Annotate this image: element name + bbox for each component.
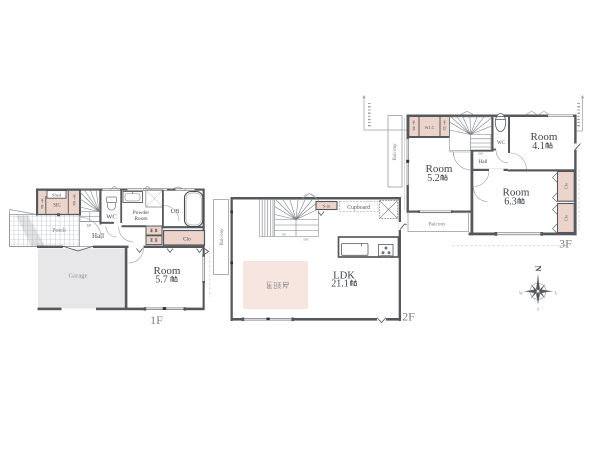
- svg-text:21.1: 21.1: [331, 279, 349, 290]
- svg-text:Clo: Clo: [183, 237, 191, 243]
- svg-text:E: E: [555, 291, 558, 296]
- svg-text:Cupboard: Cupboard: [347, 205, 370, 211]
- svg-text:5.2: 5.2: [427, 173, 440, 184]
- svg-text:Shed: Shed: [52, 193, 62, 198]
- svg-text:Garage: Garage: [68, 273, 87, 280]
- svg-text:Clo: Clo: [564, 214, 569, 221]
- svg-text:Porch: Porch: [52, 228, 66, 234]
- svg-text:Hall: Hall: [479, 159, 488, 165]
- svg-text:Hall: Hall: [92, 232, 104, 240]
- svg-text:W: W: [519, 291, 523, 296]
- svg-text:UB: UB: [170, 208, 180, 215]
- svg-text:Balcony: Balcony: [219, 228, 225, 246]
- svg-text:6.3: 6.3: [504, 197, 517, 208]
- svg-text:3F: 3F: [559, 236, 572, 250]
- svg-text:N: N: [534, 265, 544, 272]
- svg-text:5.7: 5.7: [155, 275, 168, 286]
- svg-text:4.1: 4.1: [532, 141, 545, 152]
- svg-text:S-in: S-in: [323, 204, 331, 209]
- svg-text:SIC: SIC: [53, 204, 60, 209]
- svg-text:Room: Room: [134, 216, 148, 222]
- svg-text:Balcony: Balcony: [392, 143, 398, 161]
- svg-text:UP: UP: [282, 233, 286, 237]
- svg-text:UP: UP: [87, 224, 92, 228]
- svg-text:WC: WC: [497, 141, 505, 146]
- svg-text:DN: DN: [304, 238, 309, 242]
- svg-text:Clo: Clo: [564, 182, 569, 189]
- svg-text:1F: 1F: [150, 313, 163, 327]
- svg-text:DN: DN: [478, 152, 483, 156]
- svg-text:Balcony: Balcony: [428, 222, 446, 228]
- svg-text:W.I.C: W.I.C: [425, 125, 435, 130]
- svg-text:WC: WC: [106, 214, 116, 221]
- svg-text:2F: 2F: [402, 310, 415, 324]
